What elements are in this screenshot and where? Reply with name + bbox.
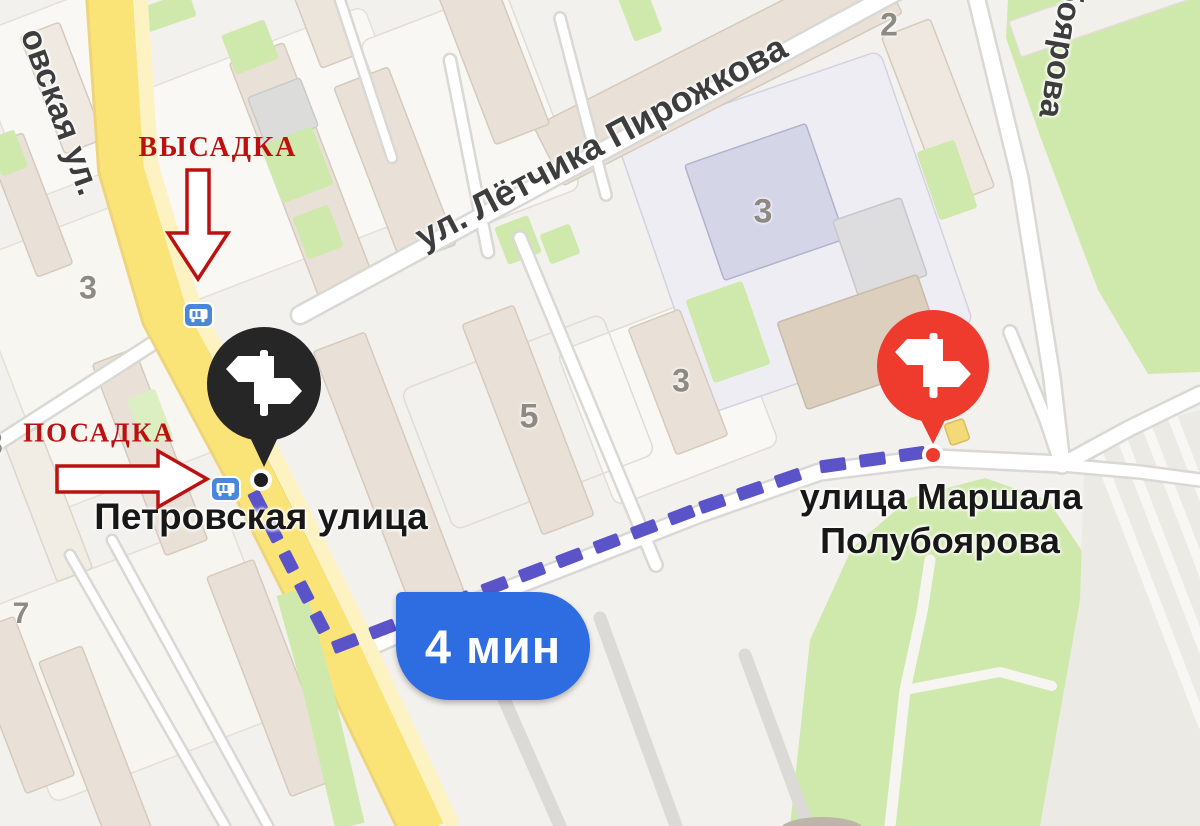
building-number: 3 [754, 193, 773, 232]
bus-window [225, 485, 228, 491]
building-number: 3 [672, 363, 690, 400]
driveway [600, 618, 676, 826]
map-green [617, 0, 662, 42]
building-number: 7 [13, 597, 30, 631]
bus-window [220, 485, 223, 491]
route-duration-badge[interactable]: 4 мин [396, 592, 590, 700]
place-label-marshala-line1[interactable]: улица Маршала [800, 476, 1083, 518]
destination-point-dot [924, 446, 942, 464]
map-building [944, 418, 970, 445]
building-number: 3 [79, 270, 97, 307]
bus-wheel [191, 319, 194, 322]
place-label-marshala-line2[interactable]: Полубоярова [820, 520, 1060, 562]
departure-point-dot [252, 471, 270, 489]
dropoff-annotation-label: ВЫСАДКА [138, 132, 297, 164]
destination-marker[interactable] [877, 310, 989, 444]
bus-stop-icon-dropoff[interactable] [184, 303, 213, 327]
pickup-annotation-label: ПОСАДКА [23, 418, 175, 449]
bus-window [198, 311, 201, 317]
map-green [539, 223, 580, 264]
bus-wheel [201, 319, 204, 322]
building-number: 5 [520, 398, 539, 437]
bus-window [193, 311, 196, 317]
driveway [745, 655, 808, 826]
driveway [500, 690, 560, 826]
building-number: 2 [880, 7, 898, 44]
place-label-petrovskaya-ulitsa[interactable]: Петровская улица [94, 496, 428, 538]
route-duration-text: 4 мин [425, 619, 561, 674]
map-screenshot: овская ул. ул. Лётчика Пирожкова боярова… [0, 0, 1200, 826]
building-number: 3 [0, 426, 3, 463]
